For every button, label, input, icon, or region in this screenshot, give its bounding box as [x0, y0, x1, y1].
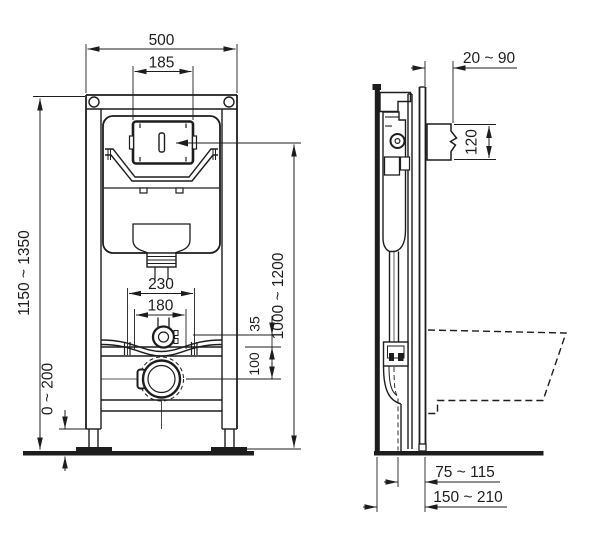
waste-outlet	[101, 357, 184, 429]
wc-pan-outline	[427, 330, 566, 414]
mounting-plate	[408, 87, 426, 451]
water-inlet-connection	[153, 318, 178, 348]
dim-cutout-width: 185	[149, 55, 175, 72]
actuator-slot	[159, 133, 165, 152]
hanger-hole-right	[224, 97, 234, 107]
dim-flush-bend-height: 120	[464, 129, 481, 155]
cistern-side-profile	[383, 112, 410, 252]
flush-bend-housing	[427, 124, 457, 160]
dim-bolt-spacing-inner: 180	[148, 298, 174, 315]
dim-outlet-offset: 100	[246, 352, 262, 376]
dim-bolt-spacing-outer: 230	[148, 276, 174, 293]
frame-rail-side	[375, 85, 380, 452]
dim-outlet-axis-depth-range: 150 ~ 210	[433, 489, 503, 506]
dim-frame-width: 500	[149, 32, 175, 49]
side-view: 20 ~ 90 120 75 ~ 115 150 ~ 210	[363, 50, 566, 512]
toilet-frame-drawing: 500 185 1150 ~ 1350 0 ~ 200 230 180	[0, 0, 600, 533]
dim-inlet-offset: 35	[247, 316, 263, 332]
adjustable-feet	[76, 429, 247, 453]
dim-frame-height-range: 1150 ~ 1350	[16, 230, 33, 316]
wall-bracket	[380, 93, 411, 112]
fill-valve	[391, 134, 405, 148]
dim-foot-adjustment-range: 0 ~ 200	[40, 363, 57, 416]
hanger-hole-left	[89, 97, 99, 107]
technical-drawing-canvas: 500 185 1150 ~ 1350 0 ~ 200 230 180	[0, 0, 600, 533]
dim-actuation-height-range: 1000 ~ 1200	[270, 252, 287, 339]
dim-outlet-axis-front-range: 75 ~ 115	[435, 464, 495, 481]
floor-line-side	[374, 451, 544, 456]
flush-pipe-and-bend	[384, 252, 409, 452]
front-view: 500 185 1150 ~ 1350 0 ~ 200 230 180	[16, 32, 301, 471]
floor-line-front	[23, 451, 254, 456]
dim-wall-clearance-range: 20 ~ 90	[463, 50, 516, 67]
